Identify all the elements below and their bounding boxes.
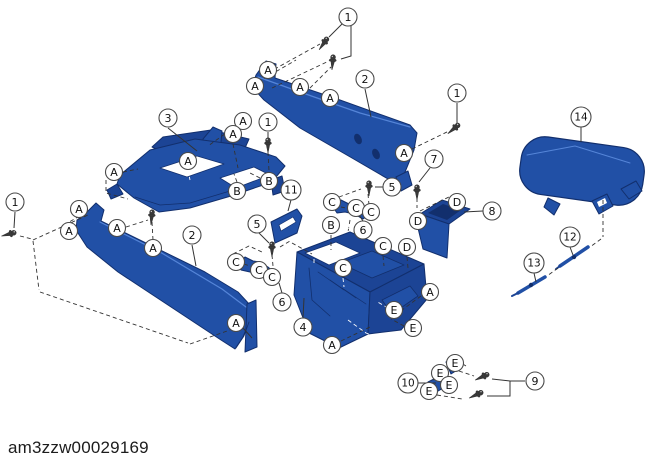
svg-text:C: C	[232, 256, 240, 269]
callout-2: 2	[183, 226, 201, 244]
svg-text:B: B	[327, 219, 335, 232]
callout-leader-line	[570, 247, 573, 255]
svg-text:11: 11	[284, 185, 297, 197]
svg-text:12: 12	[563, 232, 576, 244]
callout-leader-line	[279, 283, 282, 293]
svg-text:C: C	[328, 196, 336, 209]
screw-icon	[446, 121, 462, 136]
screw-icon	[316, 35, 330, 51]
svg-text:1: 1	[345, 11, 352, 24]
assembly-dashed-line	[152, 222, 153, 240]
svg-text:1: 1	[12, 196, 19, 209]
callout-E: E	[421, 383, 438, 400]
svg-text:A: A	[184, 155, 192, 168]
svg-text:6: 6	[360, 224, 367, 237]
callout-1: 1	[339, 8, 357, 26]
svg-text:4: 4	[300, 321, 307, 334]
svg-text:3: 3	[165, 112, 172, 125]
part-plate	[271, 209, 302, 243]
callout-6: 6	[354, 221, 372, 239]
callout-5: 5	[248, 215, 266, 233]
svg-text:2: 2	[362, 73, 369, 86]
part-armrest-lid	[517, 134, 648, 215]
callout-13: 13	[524, 253, 544, 273]
svg-text:9: 9	[532, 375, 539, 388]
svg-text:D: D	[403, 241, 411, 254]
svg-text:A: A	[264, 64, 272, 77]
callout-D: D	[410, 213, 427, 230]
callout-E: E	[386, 302, 403, 319]
screw-icon	[265, 138, 272, 153]
svg-text:A: A	[328, 339, 336, 352]
assembly-dashed-line	[547, 268, 558, 276]
assembly-dashed-line	[20, 236, 32, 239]
callout-A: A	[228, 315, 245, 332]
callout-1: 1	[448, 84, 466, 102]
svg-text:A: A	[400, 147, 408, 160]
callout-11: 11	[281, 180, 301, 200]
svg-text:A: A	[65, 225, 73, 238]
svg-text:E: E	[446, 379, 453, 392]
part-rod-short	[512, 277, 545, 296]
svg-text:D: D	[453, 196, 461, 209]
screw-icon	[366, 181, 373, 196]
callout-A: A	[225, 126, 242, 143]
svg-text:C: C	[339, 262, 347, 275]
callout-3: 3	[159, 109, 177, 127]
svg-text:A: A	[113, 222, 121, 235]
callout-A: A	[145, 240, 162, 257]
svg-text:C: C	[367, 206, 375, 219]
svg-text:A: A	[239, 115, 247, 128]
svg-text:8: 8	[489, 205, 496, 218]
assembly-dashed-line	[459, 371, 474, 376]
callout-leader-line	[14, 212, 15, 228]
svg-text:5: 5	[389, 181, 396, 194]
callout-A: A	[324, 337, 341, 354]
callout-5: 5	[383, 178, 401, 196]
assembly-dashed-line	[33, 241, 39, 290]
callout-A: A	[71, 201, 88, 218]
svg-text:C: C	[352, 202, 360, 215]
callout-C: C	[363, 204, 380, 221]
svg-text:E: E	[391, 304, 398, 317]
callout-A: A	[322, 90, 339, 107]
callout-12: 12	[560, 227, 580, 247]
callout-C: C	[264, 269, 281, 286]
svg-text:1: 1	[454, 87, 461, 100]
callout-leader-line	[419, 168, 430, 182]
callout-14: 14	[571, 107, 591, 127]
callout-A: A	[260, 62, 277, 79]
callout-2: 2	[356, 70, 374, 88]
svg-text:2: 2	[189, 229, 196, 242]
svg-text:6: 6	[279, 296, 286, 309]
callout-A: A	[180, 153, 197, 170]
callout-E: E	[447, 355, 464, 372]
svg-text:A: A	[426, 286, 434, 299]
assembly-dashed-line	[339, 189, 361, 197]
callout-leader-line	[329, 24, 342, 37]
assembly-dashed-line	[437, 395, 462, 399]
callout-C: C	[228, 254, 245, 271]
svg-text:E: E	[437, 367, 444, 380]
svg-text:E: E	[452, 357, 459, 370]
callout-E: E	[441, 377, 458, 394]
svg-text:A: A	[75, 203, 83, 216]
svg-text:D: D	[414, 215, 422, 228]
svg-text:B: B	[265, 175, 273, 188]
parts-diagram: 1111223455667891011121314AAAAAAAAAAAAAAA…	[0, 0, 655, 468]
assembly-dashed-line	[233, 246, 262, 254]
svg-text:B: B	[233, 185, 241, 198]
callout-leader-line	[192, 245, 196, 266]
callout-leader-line	[492, 379, 510, 381]
screw-icon	[414, 185, 421, 200]
screw-icon	[468, 389, 485, 402]
callout-leader-line	[288, 200, 291, 211]
callout-A: A	[106, 164, 123, 181]
svg-text:A: A	[110, 166, 118, 179]
callout-4: 4	[294, 318, 312, 336]
assembly-dashed-line	[348, 220, 350, 232]
callout-C: C	[335, 260, 352, 277]
svg-text:E: E	[410, 322, 417, 335]
callout-1: 1	[6, 193, 24, 211]
assembly-dashed-line	[590, 239, 601, 247]
callout-B: B	[261, 173, 278, 190]
callout-E: E	[405, 320, 422, 337]
watermark-code: am3zzw00029169	[8, 438, 149, 458]
callout-9: 9	[526, 372, 544, 390]
svg-text:A: A	[232, 317, 240, 330]
callout-10: 10	[398, 373, 418, 393]
svg-text:13: 13	[527, 258, 540, 270]
screw-icon	[1, 229, 17, 240]
callout-leader-line	[487, 381, 510, 396]
callout-leader-line	[259, 233, 269, 243]
svg-text:5: 5	[254, 218, 261, 231]
svg-text:10: 10	[401, 378, 414, 390]
svg-text:7: 7	[431, 153, 438, 166]
screw-icon	[474, 371, 491, 384]
callout-C: C	[348, 200, 365, 217]
svg-text:C: C	[268, 271, 276, 284]
svg-text:C: C	[255, 264, 263, 277]
svg-text:1: 1	[265, 116, 272, 129]
svg-text:A: A	[251, 80, 259, 93]
callout-A: A	[422, 284, 439, 301]
svg-text:14: 14	[574, 112, 588, 124]
callout-B: B	[229, 183, 246, 200]
svg-text:C: C	[379, 240, 387, 253]
svg-text:A: A	[326, 92, 334, 105]
callout-A: A	[396, 145, 413, 162]
callout-7: 7	[425, 150, 443, 168]
assembly-dashed-line	[412, 131, 449, 149]
callout-A: A	[247, 78, 264, 95]
callout-A: A	[61, 223, 78, 240]
callout-B: B	[323, 217, 340, 234]
callout-8: 8	[483, 202, 501, 220]
callout-C: C	[324, 194, 341, 211]
callout-leader-line	[341, 26, 351, 59]
svg-text:A: A	[229, 128, 237, 141]
svg-text:E: E	[426, 385, 433, 398]
svg-text:A: A	[149, 242, 157, 255]
callout-A: A	[292, 79, 309, 96]
callout-1: 1	[259, 113, 277, 131]
screw-icon	[148, 210, 156, 226]
diagram-canvas: 1111223455667891011121314AAAAAAAAAAAAAAA…	[0, 0, 655, 468]
svg-text:A: A	[296, 81, 304, 94]
callout-6: 6	[273, 293, 291, 311]
callout-D: D	[399, 239, 416, 256]
part-rod-long	[556, 247, 588, 269]
callout-leader-line	[534, 273, 536, 282]
screw-icon	[269, 242, 276, 257]
callout-D: D	[449, 194, 466, 211]
assembly-dashed-line	[126, 220, 148, 227]
callout-A: A	[109, 220, 126, 237]
assembly-dashed-line	[280, 241, 290, 247]
callout-C: C	[375, 238, 392, 255]
